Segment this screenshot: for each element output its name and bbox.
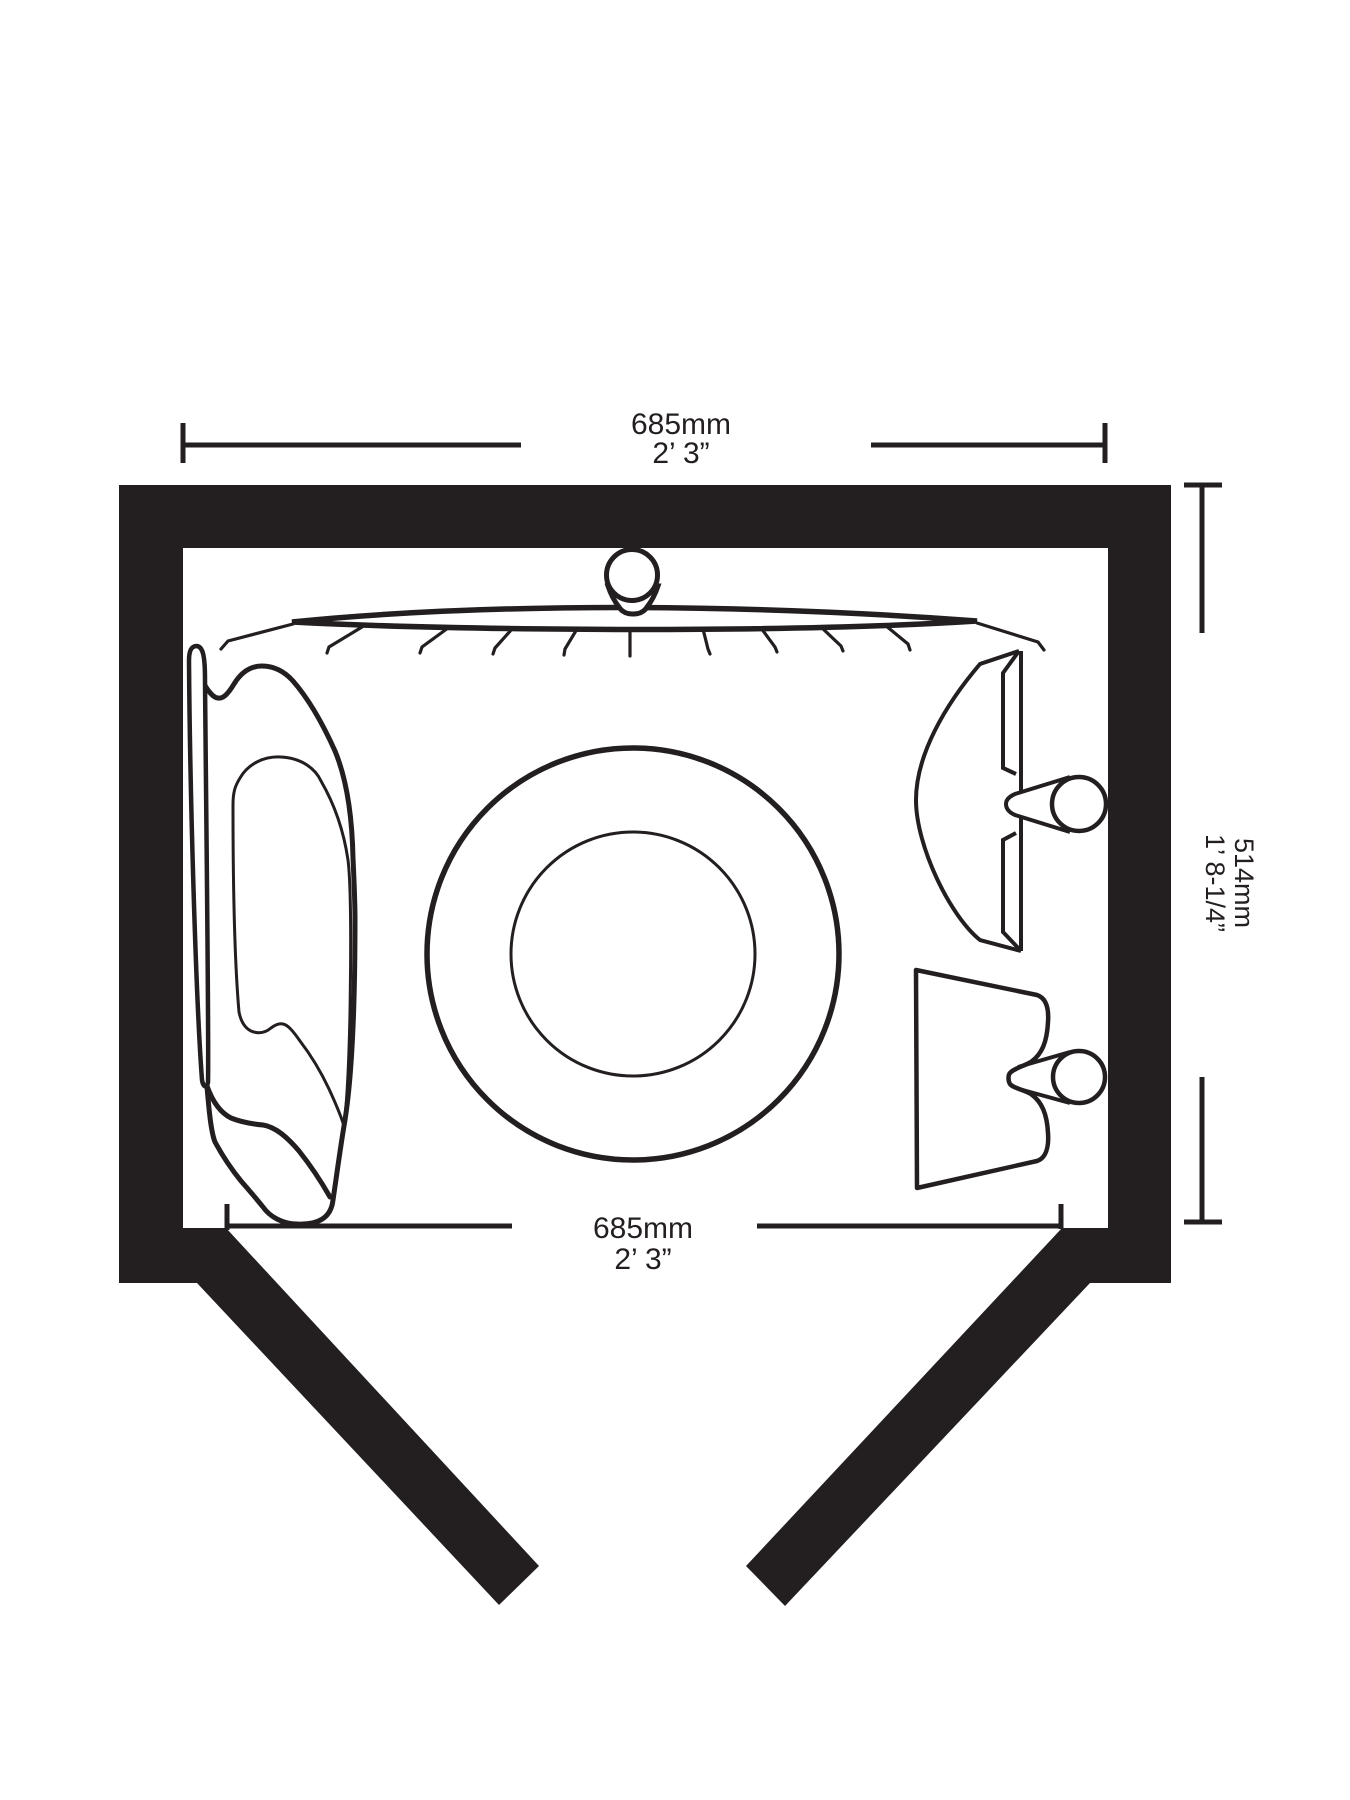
svg-text:685mm: 685mm xyxy=(593,1212,693,1245)
svg-text:2’ 3”: 2’ 3” xyxy=(652,437,709,470)
svg-text:2’ 3”: 2’ 3” xyxy=(614,1243,671,1276)
svg-text:514mm1’ 8-1/4”: 514mm1’ 8-1/4” xyxy=(1200,834,1259,932)
